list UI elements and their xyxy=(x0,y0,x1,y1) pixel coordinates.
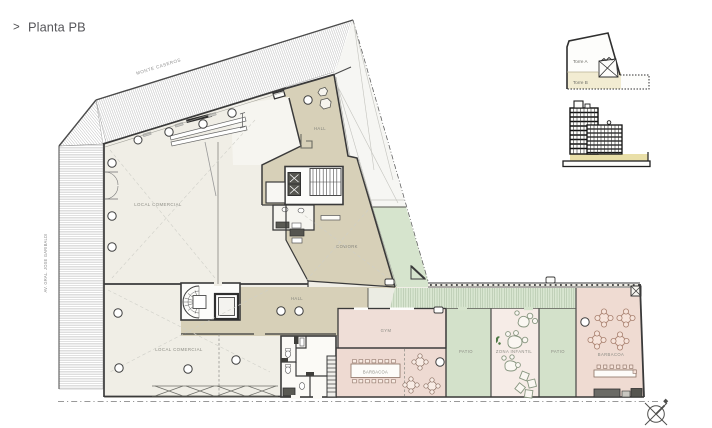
svg-text:HALL: HALL xyxy=(314,126,326,131)
svg-text:AV. GRAL. JOSE GARIBALDI: AV. GRAL. JOSE GARIBALDI xyxy=(43,234,48,293)
svg-text:LOCAL COMERCIAL: LOCAL COMERCIAL xyxy=(155,347,203,352)
svg-text:HALL: HALL xyxy=(291,296,303,301)
svg-text:Planta PB: Planta PB xyxy=(28,20,86,35)
svg-text:PATIO: PATIO xyxy=(459,349,473,354)
svg-text:COWORK: COWORK xyxy=(336,244,358,249)
svg-text:Torre A: Torre A xyxy=(573,59,588,64)
svg-text:MONTE CASEROS: MONTE CASEROS xyxy=(136,57,182,76)
svg-text:GYM: GYM xyxy=(381,328,392,333)
svg-text:Torre B: Torre B xyxy=(573,80,588,85)
svg-text:PATIO: PATIO xyxy=(551,349,565,354)
svg-text:LOCAL COMERCIAL: LOCAL COMERCIAL xyxy=(134,202,182,207)
svg-text:BARBACOA: BARBACOA xyxy=(598,352,624,357)
svg-text:ZONA INFANTIL: ZONA INFANTIL xyxy=(496,349,532,354)
svg-text:BARBACOA: BARBACOA xyxy=(363,370,388,375)
svg-text:>: > xyxy=(13,22,20,34)
